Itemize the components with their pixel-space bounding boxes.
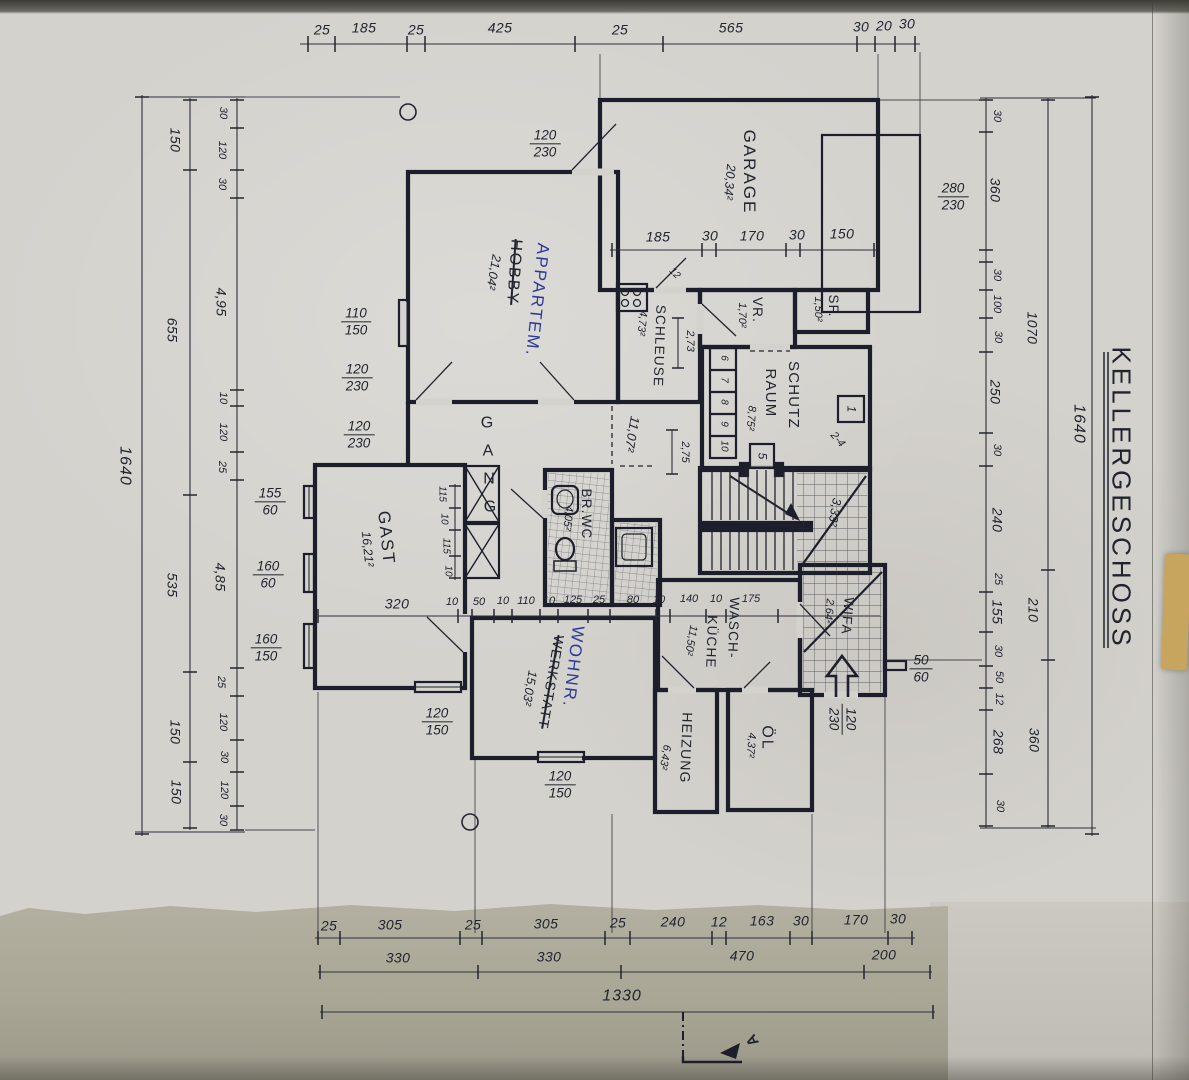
- dim-left-inner: 30: [217, 751, 229, 763]
- room-area-gast: 16,21²: [359, 531, 376, 568]
- opening-height: 150: [345, 323, 368, 338]
- dim-bottom2: 470: [730, 949, 755, 964]
- dim-left-inner: 30: [215, 178, 227, 190]
- opening-height: 230: [942, 198, 965, 213]
- dim-right-inner: 30: [990, 110, 1002, 122]
- dim-right-mid: 210: [1026, 598, 1041, 623]
- dim-right-inner: 240: [990, 508, 1005, 533]
- opening-height: 230: [346, 379, 369, 394]
- walls: [315, 100, 885, 812]
- room-label-brwc: BR.WC: [579, 489, 593, 540]
- opening-height: 230: [826, 708, 841, 731]
- bunk-number: 10: [718, 440, 729, 451]
- room-area-brwc: 4,05²: [560, 505, 574, 531]
- dim-garage: 150: [830, 227, 855, 242]
- room-area-wifa: 2,64²: [821, 598, 835, 624]
- dim-left-mid: 150: [169, 780, 184, 805]
- dim-right-total: 1640: [1070, 404, 1087, 444]
- dim-left-inner: 30: [216, 107, 228, 119]
- room-label-schleuse: SCHLEUSE: [650, 305, 667, 388]
- dim-right-mid: 1070: [1025, 312, 1040, 345]
- dim-left-inner: 120: [216, 713, 228, 731]
- dim-right-inner: 30: [991, 645, 1003, 657]
- dim-bottom2: 200: [872, 948, 897, 963]
- bunk-number: 9: [718, 421, 729, 427]
- opening-gast-south-window: 120 150: [422, 706, 453, 737]
- room-label-sf: SF.: [826, 294, 840, 317]
- dim-garage: 30: [789, 228, 805, 243]
- room-label-waschkueche-1: WASCH-: [725, 597, 741, 659]
- dim-left-total: 1640: [116, 446, 133, 486]
- dim-bottom1: 25: [465, 918, 481, 933]
- dim-gast: 115: [440, 538, 451, 554]
- opening-width: 280: [938, 181, 969, 197]
- dim-mid: 10: [497, 596, 509, 608]
- opening-hobby-door2: 120 230: [344, 419, 375, 450]
- blueprint-photo: 25 185 25 425 25 565 30 20 30 185 30 170…: [0, 0, 1189, 1080]
- dim-garage: 30: [702, 229, 718, 244]
- room-label-waschkueche-2: KÜCHE: [703, 615, 719, 669]
- room-label-gang-letter: N: [483, 472, 497, 489]
- dim-top: 185: [352, 21, 377, 36]
- dim-top: 565: [719, 21, 744, 36]
- opening-height: 230: [348, 436, 371, 451]
- dim-left-mid: 150: [168, 720, 183, 745]
- opening-width: 120: [422, 706, 453, 722]
- dim-mid: 125: [564, 595, 582, 607]
- dim-mid: 10: [710, 594, 722, 606]
- dim-schleuse-height: 2,73: [683, 330, 695, 351]
- bunk-number: 8: [718, 399, 729, 405]
- opening-width: 160: [251, 632, 282, 648]
- dim-bottom-total: 1330: [602, 989, 642, 1006]
- dim-top: 25: [612, 23, 628, 38]
- dim-top: 30: [899, 17, 915, 32]
- room-area-garage: 20,34²: [721, 164, 737, 200]
- opening-width: 120: [344, 419, 375, 435]
- opening-width: 110: [341, 306, 371, 322]
- opening-gast-window3: 160 150: [251, 632, 282, 663]
- dim-right-mid: 360: [1027, 728, 1042, 753]
- bunk-number-right: 1: [845, 406, 858, 413]
- dim-bottom1: 25: [610, 916, 626, 931]
- dim-mid: 175: [742, 594, 760, 606]
- opening-top-door: 120 230: [530, 128, 561, 159]
- room-label-vr: VR.: [750, 297, 764, 323]
- dim-bottom1: 305: [534, 917, 559, 932]
- dim-right-inner: 268: [991, 730, 1006, 755]
- opening-height: 60: [262, 503, 277, 518]
- dim-bottom2: 330: [386, 951, 411, 966]
- opening-garage-door: 280 230: [938, 181, 969, 212]
- opening-entry-window: 50 60: [909, 653, 932, 684]
- dim-left-inner: 10: [216, 392, 228, 404]
- opening-width: 120: [545, 769, 576, 785]
- dim-bottom2: 330: [537, 950, 562, 965]
- bunk-number: 7: [718, 377, 729, 383]
- dim-left-inner: 30: [216, 814, 228, 826]
- room-label-wifa: WIFA: [838, 597, 855, 636]
- room-label-garage: GARAGE: [740, 130, 758, 215]
- dim-mid: 110: [517, 596, 535, 608]
- shelter-door-number: 5: [756, 453, 769, 460]
- bunk-number: 6: [718, 355, 729, 361]
- dim-mid: 10: [446, 597, 458, 609]
- garage-door-leaf: [822, 135, 920, 312]
- dim-gang-height: 2,75: [678, 441, 690, 462]
- opening-wohnr-south-window: 120 150: [545, 769, 576, 800]
- opening-height: 60: [260, 576, 275, 591]
- dim-right-inner: 30: [990, 444, 1002, 456]
- room-label-schutzraum-1: SCHUTZ: [785, 361, 801, 429]
- dim-right-inner: 50: [992, 671, 1004, 683]
- room-area-oel: 4,37²: [743, 732, 757, 758]
- dim-mid: 10: [543, 596, 555, 608]
- dim-bottom1: 30: [793, 914, 809, 929]
- opening-height: 150: [255, 649, 278, 664]
- dim-left-inner: 120: [215, 141, 227, 159]
- opening-hobby-door1: 120 230: [342, 362, 373, 393]
- dim-mid: 320: [385, 597, 410, 612]
- opening-width: 120: [342, 362, 373, 378]
- opening-width: 155: [255, 486, 286, 502]
- page-title: KELLERGESCHOSS: [1107, 346, 1134, 649]
- opening-height: 150: [549, 786, 572, 801]
- room-label-gang-letter: G: [481, 416, 495, 433]
- dim-right-inner: 360: [988, 178, 1003, 203]
- dim-bottom1: 163: [750, 914, 775, 929]
- dim-top: 25: [314, 23, 330, 38]
- dim-right-inner: 30: [993, 800, 1005, 812]
- dim-right-inner: 12: [992, 693, 1004, 705]
- opening-width: 120: [530, 128, 561, 144]
- dim-left-inner: 120: [216, 423, 228, 441]
- room-label-gang-letter: A: [483, 444, 496, 461]
- room-area-schutzraum: 8,75²: [743, 405, 757, 431]
- dim-mid: 140: [680, 594, 698, 606]
- room-label-gang-letter: G: [484, 500, 498, 517]
- dim-bottom1: 305: [378, 918, 403, 933]
- opening-width: 120: [842, 704, 858, 735]
- dim-right-inner: 250: [988, 380, 1003, 405]
- room-area-schleuse: 4,73²: [634, 310, 648, 336]
- dim-left-mid: 150: [168, 128, 183, 153]
- dim-right-inner: 100: [990, 295, 1002, 313]
- dim-right-inner: 25: [991, 573, 1003, 585]
- room-label-schutzraum-2: RAUM: [762, 369, 778, 418]
- opening-width: 50: [909, 653, 932, 669]
- dim-left-inner: 25: [215, 461, 227, 473]
- dim-right-inner: 30: [990, 269, 1002, 281]
- dim-mid: 80: [627, 595, 639, 607]
- dim-mid: 10: [653, 595, 665, 607]
- section-marker: [683, 1012, 742, 1062]
- dim-left-inner: 4,95: [214, 288, 229, 317]
- dim-garage: 170: [740, 229, 765, 244]
- opening-entry-door: 120 230: [826, 704, 857, 735]
- room-area-vr: 1,70²: [735, 302, 747, 327]
- dim-top: 30: [853, 20, 869, 35]
- dim-mid: 50: [473, 597, 485, 609]
- opening-gast-window2: 160 60: [253, 559, 284, 590]
- opening-gast-window1: 155 60: [255, 486, 286, 517]
- dim-left-mid: 655: [165, 318, 180, 343]
- dim-bottom1: 240: [661, 915, 686, 930]
- room-label-oel: ÖL: [758, 725, 775, 750]
- opening-width: 160: [253, 559, 284, 575]
- dim-left-inner: 25: [214, 676, 226, 688]
- floor-plan-linework: [0, 0, 1189, 1080]
- dim-gast: 10: [438, 513, 449, 524]
- opening-height: 230: [534, 145, 557, 160]
- dim-garage: 185: [646, 230, 671, 245]
- room-label-hobby-crossed: HOBBY: [502, 238, 523, 305]
- opening-height: 150: [426, 723, 449, 738]
- dim-left-mid: 535: [165, 573, 180, 598]
- opening-hobby-window: 110 150: [341, 306, 371, 337]
- dim-gast: 115: [436, 486, 447, 502]
- dim-mid: 25: [593, 595, 605, 607]
- dim-top: 425: [488, 21, 513, 36]
- room-label-heizung: HEIZUNG: [677, 712, 694, 784]
- dim-top: 25: [408, 23, 424, 38]
- opening-height: 60: [913, 670, 928, 685]
- dim-gast: 10: [442, 565, 453, 576]
- dim-left-inner: 120: [217, 781, 229, 799]
- dim-bottom1: 30: [890, 912, 906, 927]
- dim-right-inner: 30: [991, 331, 1003, 343]
- dim-bottom1: 12: [711, 915, 727, 930]
- dim-bottom1: 25: [321, 919, 337, 934]
- dim-top: 20: [876, 19, 892, 34]
- dim-right-inner: 155: [990, 600, 1005, 625]
- dim-left-inner: 4,85: [213, 563, 228, 592]
- dim-bottom1: 170: [844, 913, 869, 928]
- room-area-sf: 1,50²: [811, 296, 823, 321]
